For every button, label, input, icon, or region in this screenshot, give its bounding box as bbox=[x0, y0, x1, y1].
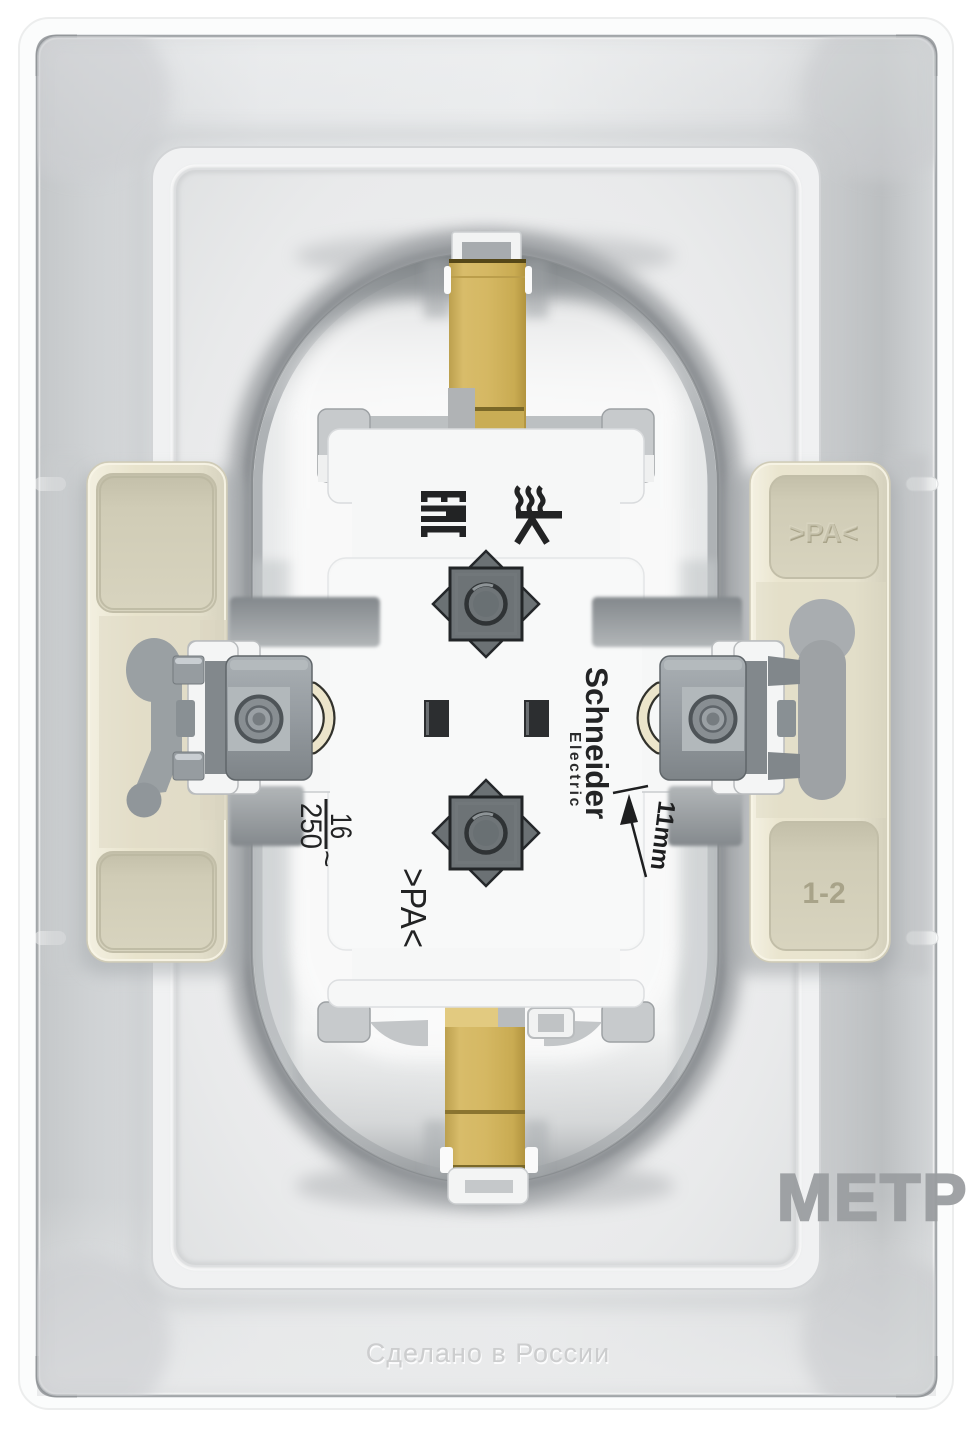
svg-text:1-2: 1-2 bbox=[802, 877, 845, 910]
svg-text:250: 250 bbox=[294, 803, 327, 849]
svg-text:МЕТР: МЕТР bbox=[777, 1160, 968, 1234]
svg-text:Schneider: Schneider bbox=[579, 667, 615, 819]
svg-text:16: 16 bbox=[324, 813, 357, 839]
svg-text:Electric: Electric bbox=[566, 732, 583, 809]
svg-text:Сделано в России: Сделано в России bbox=[366, 1338, 610, 1368]
svg-text:~: ~ bbox=[310, 850, 343, 868]
svg-text:>PA<: >PA< bbox=[393, 868, 434, 948]
svg-text:>PA<: >PA< bbox=[788, 517, 858, 548]
